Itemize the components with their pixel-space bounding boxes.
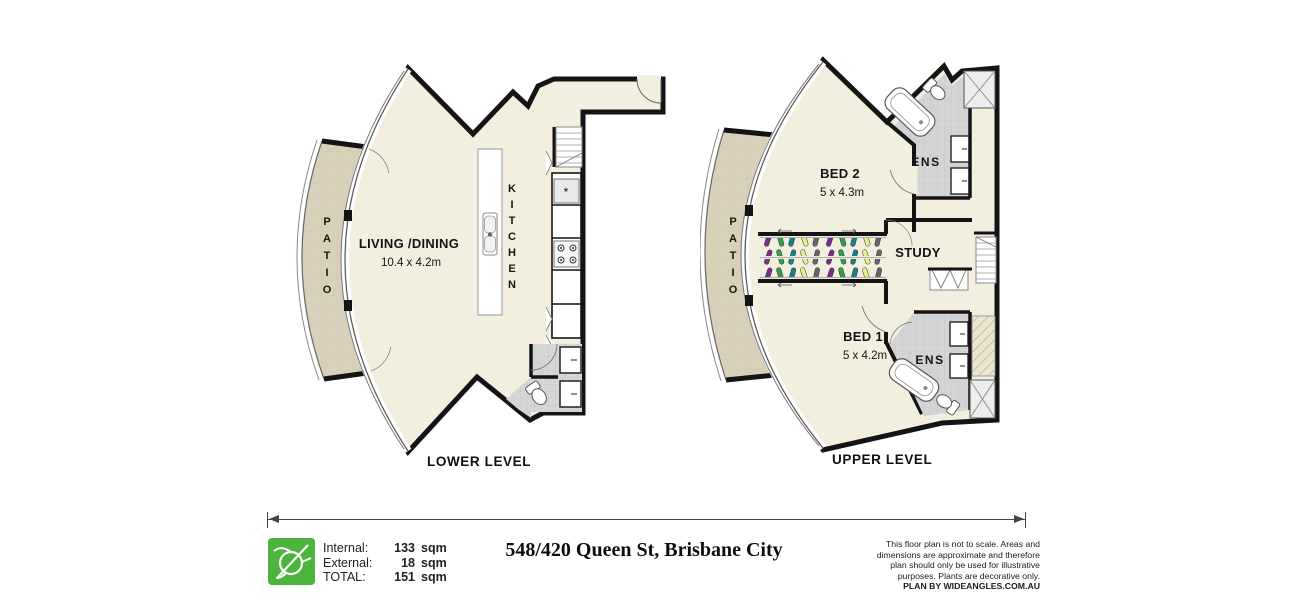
dimension-bar — [267, 519, 1026, 520]
wall-post — [344, 210, 352, 221]
living-dining-dims: 10.4 x 4.2m — [381, 257, 441, 269]
dimension-arrow-left — [269, 515, 279, 523]
disclaimer-text: This floor plan is not to scale. Areas a… — [877, 539, 1040, 581]
vanity — [560, 381, 581, 407]
kitchen-label: KITCHEN — [506, 183, 518, 295]
upper-level-caption: UPPER LEVEL — [832, 452, 932, 467]
stairs — [974, 233, 997, 283]
cooktop — [554, 241, 579, 267]
upper-level-plan: ENS — [700, 50, 1010, 470]
sink — [483, 213, 497, 255]
bed2-label: BED 2 — [820, 166, 860, 181]
kitchen-counter: * — [546, 151, 581, 359]
dimension-tick — [1025, 512, 1026, 528]
ens-bottom-label: ENS — [915, 353, 944, 367]
wall-post — [344, 300, 352, 311]
area-row-external: External: 18 sqm — [323, 556, 447, 571]
plan-credit: PLAN BY WIDEANGLES.COM.AU — [903, 581, 1040, 591]
disclaimer: This floor plan is not to scale. Areas a… — [868, 539, 1040, 592]
bed1-label: BED 1 — [843, 329, 883, 344]
wideangles-logo — [268, 538, 315, 585]
lower-level-plan: * — [290, 55, 670, 475]
area-unit: sqm — [421, 570, 447, 585]
lower-level-caption: LOWER LEVEL — [427, 454, 531, 469]
area-unit: sqm — [421, 556, 447, 571]
lens-icon — [268, 538, 315, 585]
vanity — [951, 168, 970, 194]
dimension-arrow-right — [1014, 515, 1024, 523]
area-label: TOTAL: — [323, 570, 385, 585]
vanity — [951, 136, 970, 162]
vanity — [950, 322, 968, 346]
area-row-total: TOTAL: 151 sqm — [323, 570, 447, 585]
clothes-rack — [760, 238, 886, 256]
area-value: 151 — [385, 570, 415, 585]
area-value: 18 — [385, 556, 415, 571]
wall-post — [745, 295, 753, 306]
shower-block-top — [964, 71, 995, 108]
bed2-dims: 5 x 4.3m — [820, 187, 864, 199]
vanity — [950, 354, 968, 378]
microwave-glyph: * — [564, 185, 569, 199]
property-address-title: 548/420 Queen St, Brisbane City — [444, 539, 844, 562]
floor-plan-page: * — [0, 0, 1304, 600]
kitchen-island — [478, 149, 502, 315]
void-hatch — [970, 316, 995, 418]
bed1-dims: 5 x 4.2m — [843, 350, 887, 362]
dimension-line — [267, 512, 1026, 528]
stairs — [554, 127, 582, 167]
area-label: External: — [323, 556, 385, 571]
study-label: STUDY — [895, 245, 941, 260]
laundry-tub — [560, 347, 581, 373]
area-summary: Internal: 133 sqm External: 18 sqm TOTAL… — [323, 541, 447, 585]
upper-patio-label: PATIO — [727, 216, 739, 301]
clothes-rack — [760, 259, 886, 277]
area-value: 133 — [385, 541, 415, 556]
lower-patio-label: PATIO — [321, 216, 333, 301]
area-label: Internal: — [323, 541, 385, 556]
area-unit: sqm — [421, 541, 447, 556]
wall-post — [745, 205, 753, 216]
area-row-internal: Internal: 133 sqm — [323, 541, 447, 556]
dimension-tick — [267, 512, 268, 528]
living-dining-label: LIVING /DINING — [359, 236, 459, 251]
